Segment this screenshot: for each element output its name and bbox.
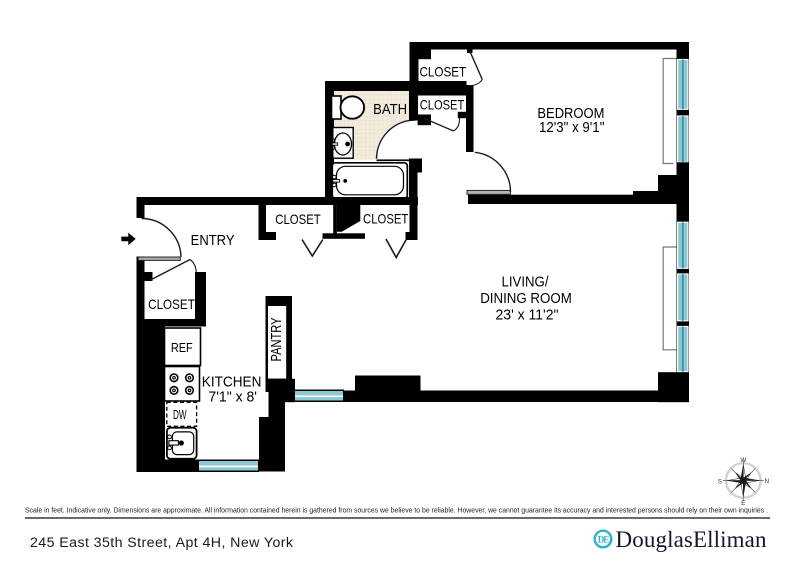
svg-text:DE: DE [598,535,609,545]
svg-text:N: N [765,478,770,485]
svg-text:CLOSET: CLOSET [363,211,409,227]
svg-text:REF: REF [171,340,193,355]
svg-text:CLOSET: CLOSET [419,63,466,79]
svg-text:W: W [740,457,746,464]
svg-text:CLOSET: CLOSET [275,211,321,227]
svg-text:DouglasElliman: DouglasElliman [616,527,768,552]
svg-text:12'3" x 9'1": 12'3" x 9'1" [539,120,604,136]
svg-text:245 East 35th Street, Apt 4H,: 245 East 35th Street, Apt 4H, New York [30,535,294,551]
svg-text:DW: DW [173,407,187,422]
svg-text:7'1" x 8': 7'1" x 8' [208,390,257,406]
svg-text:CLOSET: CLOSET [148,296,195,312]
svg-text:S: S [718,478,722,485]
svg-text:KITCHEN: KITCHEN [202,374,262,390]
svg-text:CLOSET: CLOSET [420,97,465,113]
svg-text:23' x 11'2": 23' x 11'2" [496,307,559,323]
svg-text:DINING ROOM: DINING ROOM [480,291,572,307]
svg-text:ENTRY: ENTRY [191,233,235,249]
svg-text:BATH: BATH [373,101,407,118]
svg-text:LIVING/: LIVING/ [502,274,550,290]
svg-text:PANTRY: PANTRY [269,317,285,361]
svg-text:Scale in feet. Indicative only: Scale in feet. Indicative only. Dimensio… [25,506,768,515]
